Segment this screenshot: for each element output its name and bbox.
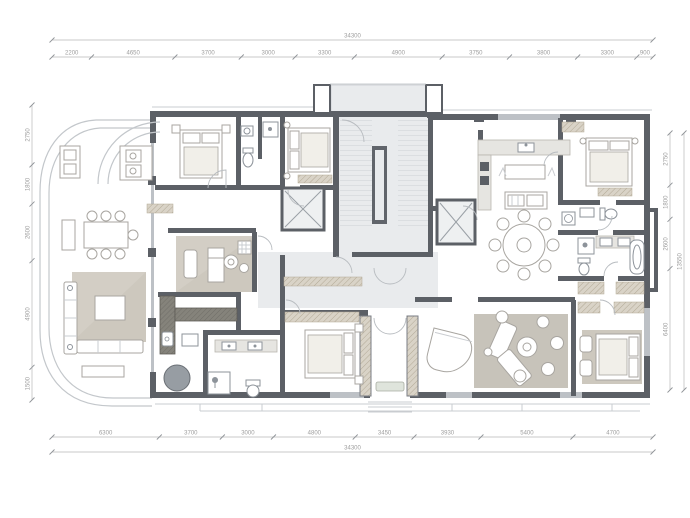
dim-label: 1800 [26, 177, 32, 191]
washer [562, 212, 575, 225]
bathroom-right [578, 236, 644, 275]
dining-room-left [62, 211, 138, 259]
chair [547, 239, 559, 251]
sink [162, 332, 173, 346]
bathtub [630, 240, 644, 274]
dining-kitchen-right [478, 140, 570, 280]
dim-label: 4900 [26, 307, 32, 321]
dim-label: 13550 [678, 252, 684, 269]
chair [115, 249, 125, 259]
chair [87, 249, 97, 259]
sofa-bottom [77, 340, 143, 353]
chair [115, 211, 125, 221]
bedroom2 [284, 122, 330, 179]
nightstand [355, 324, 363, 332]
dim-label: 34300 [344, 34, 361, 40]
floor-plan-canvas: 3430022004650370030003300490037503800330… [0, 0, 690, 518]
media-console [82, 366, 124, 377]
dim-label: 2750 [26, 128, 32, 142]
dim-label: 3000 [241, 431, 255, 437]
entry-bench [376, 382, 404, 391]
chair [539, 260, 551, 272]
ottoman [542, 363, 555, 376]
chair [101, 249, 111, 259]
dim-label: 6400 [664, 322, 670, 336]
dim-label: 4650 [127, 51, 141, 57]
dim-label: 6300 [99, 431, 113, 437]
dim-label: 3930 [441, 431, 455, 437]
armchair [580, 360, 592, 376]
bedroom-top-right [580, 138, 638, 186]
shower [578, 238, 594, 254]
kitchen-island2 [505, 192, 547, 209]
dim-label: 2600 [26, 225, 32, 239]
dim-label: 3700 [201, 51, 215, 57]
kitchen-cabinet [60, 146, 80, 178]
grid-table [238, 241, 251, 254]
bench-table [499, 165, 555, 179]
nightstand [222, 125, 230, 133]
dim-label: 4900 [392, 51, 406, 57]
chair [87, 211, 97, 221]
chair [497, 260, 509, 272]
toilet [243, 153, 253, 167]
nightstand [355, 376, 363, 384]
dim-label: 34300 [344, 446, 361, 452]
toilet [578, 258, 590, 275]
dim-label: 1800 [664, 195, 670, 209]
bedroom3 [305, 324, 363, 384]
dim-label: 3300 [318, 51, 332, 57]
ottoman [496, 311, 508, 323]
floor-plan-drawing: 3430022004650370030003300490037503800330… [0, 0, 690, 518]
dim-label: 3450 [378, 431, 392, 437]
elevator-right [437, 200, 475, 244]
chair [539, 218, 551, 230]
armchair [580, 336, 592, 352]
bedroom1 [172, 125, 230, 178]
chair [518, 210, 530, 222]
sink [580, 208, 594, 217]
grand-piano [424, 328, 474, 377]
ottoman [514, 370, 526, 382]
wc-right [562, 208, 617, 225]
dim-label: 900 [640, 51, 651, 57]
counter-appliance [182, 334, 198, 346]
dining-table [84, 222, 128, 248]
dim-label: 4800 [308, 431, 322, 437]
nightstand [172, 125, 180, 133]
toilet [246, 380, 260, 397]
dim-label: 2750 [664, 152, 670, 166]
bathroom-bottom [208, 340, 277, 397]
dim-label: 3000 [262, 51, 276, 57]
coffee-table [95, 296, 125, 320]
toilet [600, 208, 617, 220]
dim-label: 2200 [65, 51, 79, 57]
terrace-floor [331, 85, 427, 113]
dim-label: 3700 [184, 431, 198, 437]
side-stool [240, 264, 249, 273]
ottoman [551, 337, 564, 350]
dim-label: 1500 [26, 376, 32, 390]
shower [208, 372, 230, 394]
sideboard [62, 220, 75, 250]
chair [128, 230, 138, 240]
kitchen-left [60, 122, 160, 184]
toilet-tank [243, 148, 253, 153]
dim-label: 4700 [606, 431, 620, 437]
chair [518, 268, 530, 280]
round-tub [164, 365, 190, 391]
chair [489, 239, 501, 251]
dim-label: 3750 [469, 51, 483, 57]
chair [101, 211, 111, 221]
dim-label: 2600 [664, 237, 670, 251]
chair [497, 218, 509, 230]
round-dining-table [489, 210, 559, 280]
ottoman [537, 316, 549, 328]
side-table [484, 348, 492, 356]
kitchen-island [120, 146, 152, 180]
dim-label: 3300 [601, 51, 615, 57]
daybed [184, 250, 197, 278]
dim-label: 3800 [537, 51, 551, 57]
dim-label: 5400 [520, 431, 534, 437]
